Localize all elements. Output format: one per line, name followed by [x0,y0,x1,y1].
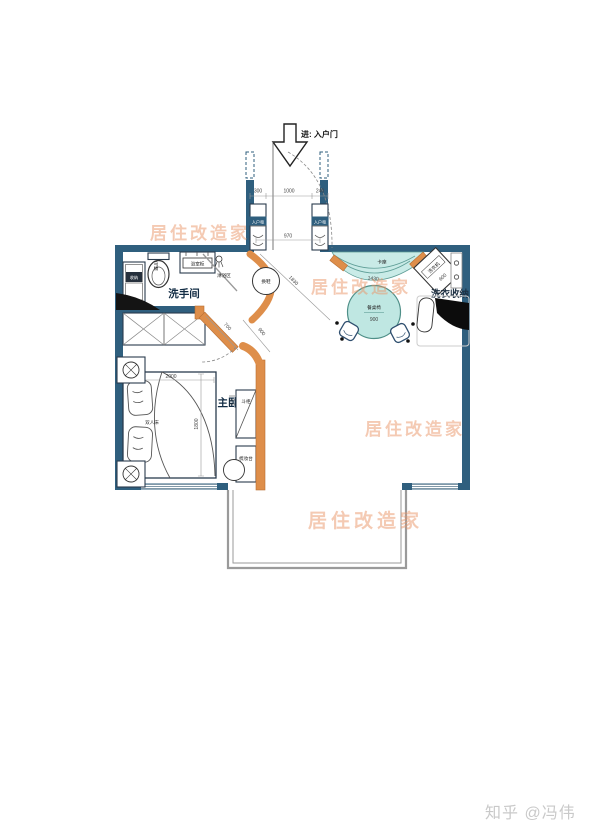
booth-label: 卡座 [377,259,387,266]
nightstand [117,461,145,487]
nightstand [117,357,145,383]
table-label: 餐桌椅 [367,304,381,311]
closet [123,313,205,345]
watermark-brand: 居住改造家 [365,419,465,439]
dresser-label: 梳妆台 [239,455,253,462]
watermark-brand: 居住改造家 [150,223,250,243]
dim-entry-center: 1000 [283,189,294,195]
dim-entry-width: 970 [284,234,293,240]
entry-cabinet-right-label: 入户柜 [314,218,327,225]
dim-entry-right: 240 [316,189,325,195]
chest-label: 斗柜 [241,398,251,405]
dresser: 梳妆台 [224,446,257,482]
watermark-brand: 居住改造家 [311,277,411,297]
entry-cabinet-right: 入户柜 [312,204,329,250]
exterior-wall-stub [246,152,254,178]
toilet-icon: 马桶 [148,253,169,288]
dim-bed-length: 1800 [194,418,200,429]
toilet-label: 马桶 [153,260,159,272]
wall-column [451,253,462,288]
bathroom-cabinet-label: 收纳 [130,274,138,281]
exterior-wall-stub [320,152,328,178]
room-label-bathroom: 洗手间 [168,287,200,300]
dim-entry-left: 300 [254,189,263,195]
dim-table: 900 [370,317,379,323]
vanity-label: 浴室柜 [191,260,205,267]
laundry-bench [416,296,469,346]
window-bottom-right [412,484,458,490]
entry-door-label: 进: 入户门 [301,129,338,139]
shower-label: 淋浴区 [217,272,231,279]
credit-watermark: 知乎 @冯伟 [485,804,576,822]
dim-passage: 900 [256,327,266,337]
shoe-stool: 换鞋 [253,268,280,295]
window-bottom-left [141,484,217,490]
entry-cabinet-left-label: 入户柜 [252,218,265,225]
zone-label-laundry: 洗衣收纳 [431,288,469,300]
dim-bed-width: 2000 [165,374,176,380]
dim-door: 700 [222,322,232,332]
vanity-cabinet: 浴室柜 [180,252,215,273]
watermark-brand: 居住改造家 [308,509,423,532]
floor-plan: 进: 入户门 入户柜 入户柜 300 1000 240 970 1830 收纳 [0,0,600,838]
bed-label: 双人床 [145,419,159,426]
entry-cabinet-left: 入户柜 [250,204,267,250]
shoe-stool-label: 换鞋 [261,278,271,285]
